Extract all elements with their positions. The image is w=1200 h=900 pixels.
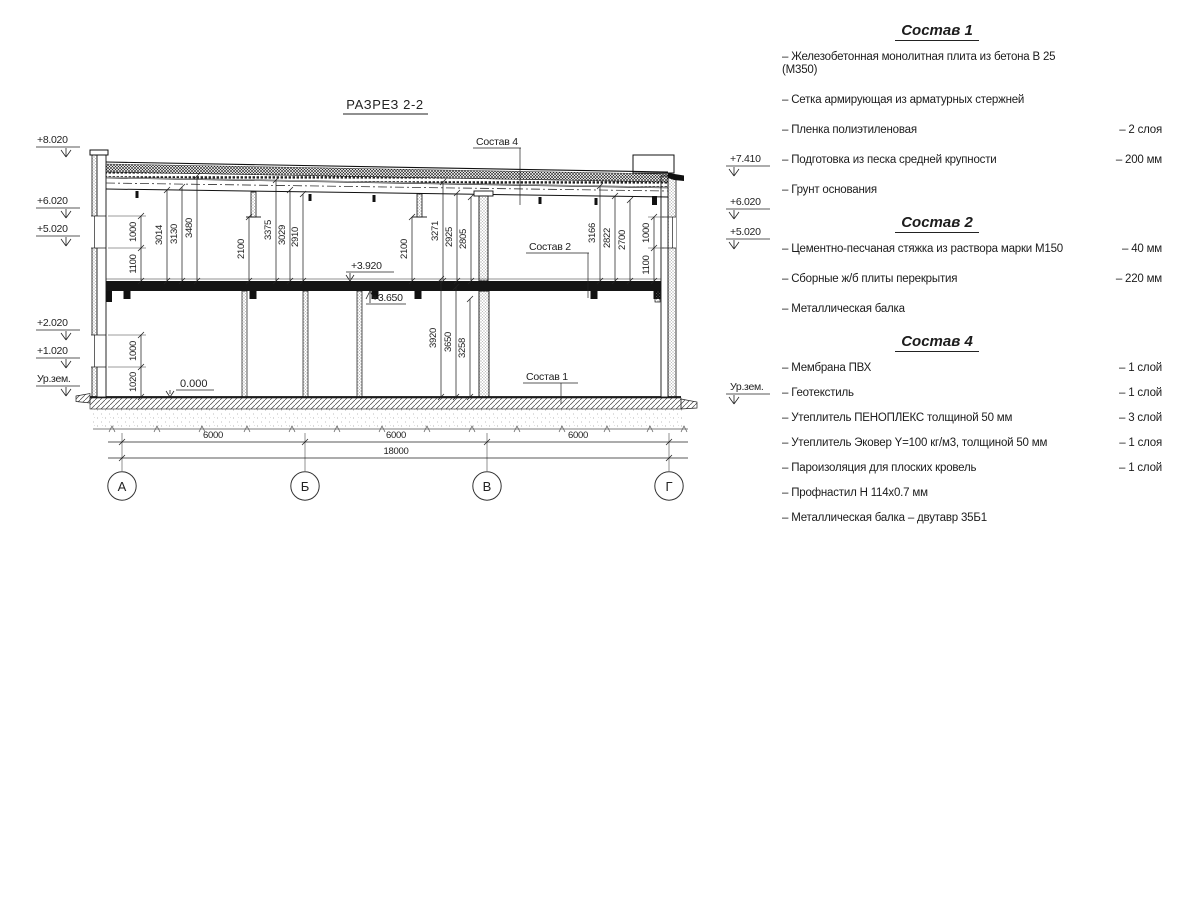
elev-mark-ground-right (726, 394, 770, 404)
roof-beam-stub (136, 191, 139, 198)
note-name: – Пленка полиэтиленовая (782, 124, 917, 137)
elev-text-ground-left: Ур.зем. (37, 373, 71, 385)
f2-partition-b (417, 194, 422, 217)
blind-area-right (681, 399, 697, 409)
dim-1000-f2-right: 1000 (641, 223, 652, 243)
right-wall-core (661, 176, 668, 397)
left-wall-core (97, 153, 106, 397)
f2-partition-a (251, 192, 256, 217)
drawing-title: РАЗРЕЗ 2-2 (346, 97, 424, 112)
note-row: – Подготовка из песка средней крупности … (782, 154, 1162, 167)
f2-wall-stub (652, 196, 657, 205)
axis-bubbles: А Б В Г (108, 472, 683, 500)
dim-3130: 3130 (169, 224, 180, 244)
dim-2100-a: 2100 (236, 239, 247, 259)
note-value: – 2 слоя (1119, 124, 1162, 137)
slab-beam (250, 291, 257, 299)
note-value: – 1 слоя (1119, 437, 1162, 450)
sostav1-section: Состав 1 – Железобетонная монолитная пли… (782, 22, 1162, 197)
note-row: – Сборные ж/б плиты перекрытия – 220 мм (782, 273, 1162, 286)
dim-3166: 3166 (587, 223, 598, 243)
note-row: – Профнастил Н 114х0.7 мм (782, 487, 1162, 500)
note-value: – 200 мм (1116, 154, 1162, 167)
dim-6000-1: 6000 (203, 430, 223, 441)
note-name: – Подготовка из песка средней крупности (782, 154, 996, 167)
roof-beam-stub (539, 197, 542, 204)
note-row: – Пленка полиэтиленовая – 2 слоя (782, 124, 1162, 137)
sostav4-title: Состав 4 (895, 333, 979, 352)
elev-text-8020: +8.020 (37, 134, 68, 146)
axis-label-a: А (118, 479, 127, 494)
note-name: – Металлическая балка (782, 303, 905, 316)
dim-3029: 3029 (277, 225, 288, 245)
elev-text-zero: 0.000 (180, 378, 208, 390)
note-name: – Сетка армирующая из арматурных стержне… (782, 94, 1024, 107)
elev-mark-6020-left (36, 208, 80, 218)
note-value: – 220 мм (1116, 273, 1162, 286)
note-value: – 1 слой (1119, 362, 1162, 375)
elev-mark-5020-right (726, 239, 770, 249)
elev-mark-ground-left (36, 386, 80, 396)
elev-mark-8020 (36, 147, 80, 157)
elev-mark-2020 (36, 330, 80, 340)
leader-text-sostav2: Состав 2 (529, 241, 571, 253)
dim-6000-2: 6000 (386, 430, 406, 441)
dim-3480: 3480 (184, 218, 195, 238)
elev-text-5020-left: +5.020 (37, 223, 68, 235)
sostav2-heading: Состав 2 (782, 214, 1092, 233)
f1-column (357, 291, 362, 397)
note-name: – Цементно-песчаная стяжка из раствора м… (782, 243, 1063, 256)
elev-text-3650: +3.650 (372, 292, 403, 304)
elev-mark-zero (166, 390, 214, 397)
dim-1000-f1-left: 1000 (128, 341, 139, 361)
note-value: – 1 слой (1119, 387, 1162, 400)
dim-2700: 2700 (617, 230, 628, 250)
slab-beam (124, 291, 131, 299)
dim-2925: 2925 (444, 227, 455, 247)
note-row: – Металлическая балка (782, 303, 1162, 316)
axis-label-v: В (483, 479, 492, 494)
note-name: – Мембрана ПВХ (782, 362, 871, 375)
note-row: – Геотекстиль – 1 слой (782, 387, 1162, 400)
f2-column-capital (474, 191, 493, 196)
dim-3271: 3271 (430, 221, 441, 241)
left-beam-seat (106, 291, 112, 302)
note-value: – 3 слой (1119, 412, 1162, 425)
left-wall (90, 150, 112, 397)
axis-label-g: Г (665, 479, 672, 494)
note-row: – Утеплитель ПЕНОПЛЕКС толщиной 50 мм – … (782, 412, 1162, 425)
note-row: – Пароизоляция для плоских кровель – 1 с… (782, 462, 1162, 475)
note-row: – Грунт основания (782, 184, 1162, 197)
dim-2100-b: 2100 (399, 239, 410, 259)
note-name: – Сборные ж/б плиты перекрытия (782, 273, 957, 286)
note-value: – 40 мм (1122, 243, 1162, 256)
leader-text-sostav4: Состав 4 (476, 136, 518, 148)
sostav2-section: Состав 2 – Цементно-песчаная стяжка из р… (782, 214, 1162, 316)
note-name: – Утеплитель Эковер Y=100 кг/м3, толщино… (782, 437, 1047, 450)
sostav2-title: Состав 2 (895, 214, 979, 233)
right-parapet (633, 155, 674, 173)
note-value: – 1 слой (1119, 462, 1162, 475)
dim-18000: 18000 (384, 446, 409, 457)
elev-text-3920: +3.920 (351, 260, 382, 272)
dim-1000-f2-left: 1000 (128, 222, 139, 242)
dim-3014: 3014 (154, 225, 165, 245)
note-row: – Сетка армирующая из арматурных стержне… (782, 94, 1162, 107)
section-drawing: А Б В Г РАЗРЕЗ 2-2 +8.020 +6.020 +5.020 … (0, 0, 780, 540)
note-row: – Железобетонная монолитная плита из бет… (782, 51, 1162, 77)
note-name: – Грунт основания (782, 184, 877, 197)
drawing-sheet: А Б В Г РАЗРЕЗ 2-2 +8.020 +6.020 +5.020 … (0, 0, 1200, 900)
slab-beam (591, 291, 598, 299)
note-row: – Металлическая балка – двутавр 35Б1 (782, 512, 1162, 525)
elev-text-6020-left: +6.020 (37, 195, 68, 207)
f2-column-axis-v (479, 196, 488, 281)
leader-lines (343, 114, 589, 404)
elev-text-5020-right: +5.020 (730, 226, 761, 238)
leader-text-sostav1: Состав 1 (526, 371, 568, 383)
elev-mark-3920 (346, 272, 394, 281)
elev-mark-1020 (36, 358, 80, 368)
f1-column (242, 291, 247, 397)
sostav4-section: Состав 4 – Мембрана ПВХ – 1 слой – Геоте… (782, 333, 1162, 525)
blind-area-left (76, 394, 90, 404)
dim-3375: 3375 (263, 220, 274, 240)
dim-1100-f2-left: 1100 (128, 254, 139, 273)
elev-mark-6020-right (726, 209, 770, 219)
right-wall-cladding (668, 176, 676, 397)
sostav4-heading: Состав 4 (782, 333, 1092, 352)
elev-mark-7410 (726, 166, 770, 176)
roof-beam-stub (309, 194, 312, 201)
note-row: – Мембрана ПВХ – 1 слой (782, 362, 1162, 375)
note-name: – Утеплитель ПЕНОПЛЕКС толщиной 50 мм (782, 412, 1012, 425)
leader-sostav2 (526, 253, 589, 298)
note-name: – Геотекстиль (782, 387, 854, 400)
dim-3650: 3650 (443, 332, 454, 352)
roof-beam-stub (373, 195, 376, 202)
elev-text-2020: +2.020 (37, 317, 68, 329)
elev-text-7410: +7.410 (730, 153, 761, 165)
axis-label-b: Б (301, 479, 310, 494)
slab-beam (415, 291, 422, 299)
sostav1-heading: Состав 1 (782, 22, 1092, 41)
note-name: – Профнастил Н 114х0.7 мм (782, 487, 928, 500)
dim-2822: 2822 (602, 228, 613, 248)
elev-text-1020: +1.020 (37, 345, 68, 357)
note-name: – Пароизоляция для плоских кровель (782, 462, 976, 475)
f1-column (303, 291, 308, 397)
dim-6000-3: 6000 (568, 430, 588, 441)
roof-assembly (106, 162, 668, 205)
floor2-slab-band (106, 281, 661, 291)
sand-layer (93, 409, 685, 429)
dim-2805: 2805 (458, 229, 469, 249)
roof-beam-stub (595, 198, 598, 205)
left-parapet-cap (90, 150, 108, 155)
dim-3920: 3920 (428, 328, 439, 348)
f1-wall-pilaster (655, 291, 660, 302)
ground (76, 394, 697, 433)
note-row: – Цементно-песчаная стяжка из раствора м… (782, 243, 1162, 256)
notes-column: Состав 1 – Железобетонная монолитная пли… (782, 22, 1162, 537)
note-name: – Железобетонная монолитная плита из бет… (782, 51, 1082, 77)
elev-text-6020-right: +6.020 (730, 196, 761, 208)
f1-wall-axis-v (479, 291, 489, 397)
note-name: – Металлическая балка – двутавр 35Б1 (782, 512, 987, 525)
right-wall (633, 155, 684, 397)
sostav1-title: Состав 1 (895, 22, 979, 41)
elev-mark-5020-left (36, 236, 80, 246)
dim-3258: 3258 (457, 338, 468, 358)
dim-1100-f2-right: 1100 (641, 255, 652, 274)
note-row: – Утеплитель Эковер Y=100 кг/м3, толщино… (782, 437, 1162, 450)
floor-slab-sostav1 (90, 398, 681, 409)
elev-text-ground-right: Ур.зем. (730, 381, 764, 393)
dim-2910: 2910 (290, 227, 301, 247)
dim-1020: 1020 (128, 372, 139, 392)
